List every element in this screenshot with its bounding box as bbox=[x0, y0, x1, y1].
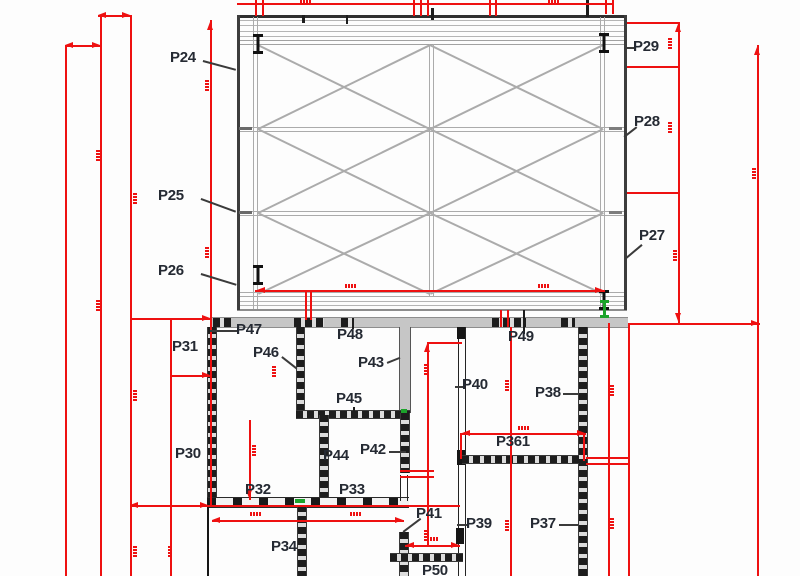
dimension-text-mark bbox=[133, 193, 137, 205]
point-label-p37: P37 bbox=[530, 516, 556, 531]
dimension-line bbox=[628, 323, 760, 325]
framing-line bbox=[600, 17, 601, 309]
dimension-line bbox=[400, 476, 434, 478]
dimension-line bbox=[586, 463, 628, 465]
wall-segment bbox=[390, 553, 463, 562]
dimension-text-mark bbox=[133, 546, 137, 558]
dimension-arrow bbox=[200, 502, 208, 508]
framing-line bbox=[237, 20, 627, 21]
dimension-text-mark bbox=[300, 0, 312, 4]
dimension-line bbox=[460, 433, 462, 459]
dimension-arrow bbox=[130, 502, 138, 508]
framing-line bbox=[237, 31, 627, 32]
dimension-text-mark bbox=[133, 390, 137, 402]
plan-geometry bbox=[0, 0, 800, 576]
point-label-p47: P47 bbox=[236, 322, 262, 337]
dimension-arrow bbox=[751, 320, 759, 326]
dimension-line bbox=[255, 290, 605, 292]
dimension-line bbox=[420, 0, 422, 16]
dimension-line bbox=[757, 45, 759, 576]
dimension-text-mark bbox=[168, 546, 172, 558]
column-marker-icon bbox=[253, 34, 263, 54]
point-label-p50: P50 bbox=[422, 563, 448, 576]
leader-line bbox=[559, 524, 578, 526]
dimension-line bbox=[608, 323, 610, 576]
dimension-line bbox=[130, 505, 460, 507]
point-label-p30: P30 bbox=[175, 446, 201, 461]
dimension-text-mark bbox=[668, 122, 672, 134]
point-label-p49: P49 bbox=[508, 329, 534, 344]
wall-segment bbox=[296, 327, 305, 411]
dimension-line bbox=[212, 520, 404, 522]
framing-line bbox=[433, 44, 434, 296]
point-label-p45: P45 bbox=[336, 391, 362, 406]
dimension-line bbox=[413, 0, 415, 16]
dimension-text-mark bbox=[518, 426, 530, 430]
leader-line bbox=[210, 330, 237, 332]
dimension-arrow bbox=[122, 12, 130, 18]
point-label-p27: P27 bbox=[639, 228, 665, 243]
dimension-arrow bbox=[577, 430, 585, 436]
framing-line bbox=[237, 305, 627, 306]
leader-line bbox=[389, 451, 406, 453]
dimension-line bbox=[262, 0, 264, 16]
dimension-arrow bbox=[395, 517, 403, 523]
point-label-p24: P24 bbox=[170, 50, 196, 65]
framing-line bbox=[431, 8, 434, 20]
point-label-p25: P25 bbox=[158, 188, 184, 203]
dimension-arrow bbox=[462, 430, 470, 436]
dimension-line bbox=[628, 323, 630, 576]
framing-line bbox=[239, 211, 252, 214]
dimension-text-mark bbox=[96, 150, 100, 162]
dimension-line bbox=[65, 45, 67, 576]
framing-line bbox=[237, 40, 627, 41]
dimension-text-mark bbox=[610, 385, 614, 397]
dimension-line bbox=[400, 470, 434, 472]
dimension-line bbox=[427, 0, 429, 16]
dimension-line bbox=[605, 0, 607, 14]
point-label-p46: P46 bbox=[253, 345, 279, 360]
dimension-line bbox=[507, 310, 509, 327]
point-label-p29: P29 bbox=[633, 39, 659, 54]
survey-mark bbox=[295, 499, 305, 503]
framing-line bbox=[237, 292, 627, 293]
point-label-p39: P39 bbox=[466, 516, 492, 531]
framing-line bbox=[624, 15, 627, 310]
dimension-arrow bbox=[406, 542, 414, 548]
point-label-p32: P32 bbox=[245, 482, 271, 497]
point-label-p48: P48 bbox=[337, 327, 363, 342]
framing-line bbox=[609, 127, 622, 130]
dimension-line bbox=[583, 433, 585, 461]
leader-line bbox=[563, 393, 578, 395]
framing-line bbox=[346, 15, 348, 24]
point-label-p361: P361 bbox=[496, 434, 530, 449]
dimension-arrow bbox=[257, 287, 265, 293]
wall-segment bbox=[297, 505, 307, 576]
dimension-text-mark bbox=[96, 300, 100, 312]
dimension-arrow bbox=[202, 315, 210, 321]
framing-line bbox=[237, 25, 627, 26]
point-label-p38: P38 bbox=[535, 385, 561, 400]
dimension-arrow bbox=[675, 313, 681, 321]
framing-line bbox=[604, 17, 605, 309]
framing-line bbox=[237, 309, 627, 311]
dimension-arrow bbox=[675, 24, 681, 32]
dimension-line bbox=[586, 457, 628, 459]
wall-segment bbox=[400, 475, 408, 501]
dimension-text-mark bbox=[673, 250, 677, 262]
dimension-arrow bbox=[595, 287, 603, 293]
point-label-p40: P40 bbox=[462, 377, 488, 392]
dimension-line bbox=[678, 22, 680, 323]
dimension-line bbox=[310, 290, 312, 320]
survey-mark bbox=[401, 409, 407, 413]
dimension-arrow bbox=[754, 47, 760, 55]
dimension-line bbox=[130, 15, 132, 576]
wall-segment bbox=[207, 327, 217, 498]
column-marker-icon bbox=[599, 33, 609, 53]
dimension-line bbox=[427, 342, 462, 344]
point-label-p33: P33 bbox=[339, 482, 365, 497]
dimension-line bbox=[305, 290, 307, 320]
dimension-text-mark bbox=[610, 518, 614, 530]
dimension-arrow bbox=[212, 517, 220, 523]
point-label-p26: P26 bbox=[158, 263, 184, 278]
dimension-text-mark bbox=[505, 520, 509, 532]
dimension-text-mark bbox=[424, 530, 428, 542]
dimension-arrow bbox=[202, 372, 210, 378]
dimension-line bbox=[100, 15, 102, 576]
drawing-sheet: P24 P25 P26 P27 P28 P29 P30 P31 P32 P33 … bbox=[0, 0, 800, 576]
leader-line bbox=[353, 407, 355, 415]
dimension-text-mark bbox=[350, 512, 362, 516]
dimension-arrow bbox=[451, 542, 459, 548]
dimension-line bbox=[510, 327, 512, 576]
framing-line bbox=[212, 327, 628, 328]
dimension-line bbox=[170, 318, 172, 576]
point-label-p34: P34 bbox=[271, 539, 297, 554]
wall-segment bbox=[207, 500, 209, 576]
dimension-line bbox=[612, 0, 614, 14]
dimension-line bbox=[627, 66, 679, 68]
dimension-text-mark bbox=[272, 366, 276, 378]
framing-line bbox=[237, 127, 627, 128]
wall-segment bbox=[400, 413, 410, 473]
framing-line bbox=[237, 301, 627, 302]
dimension-line bbox=[210, 20, 212, 505]
wall-segment bbox=[561, 318, 575, 327]
dimension-text-mark bbox=[205, 247, 209, 259]
dimension-text-mark bbox=[752, 168, 756, 180]
dimension-text-mark bbox=[252, 445, 256, 457]
dimension-line bbox=[500, 310, 502, 327]
framing-line bbox=[237, 215, 627, 216]
point-label-p28: P28 bbox=[634, 114, 660, 129]
framing-line bbox=[239, 127, 252, 130]
wall-segment bbox=[213, 318, 231, 327]
dimension-text-mark bbox=[205, 80, 209, 92]
dimension-text-mark bbox=[668, 38, 672, 50]
point-label-p31: P31 bbox=[172, 339, 198, 354]
dimension-line bbox=[627, 22, 679, 24]
framing-line bbox=[609, 211, 622, 214]
framing-line bbox=[237, 296, 627, 297]
dimension-arrow bbox=[424, 344, 430, 352]
dimension-line bbox=[255, 0, 257, 16]
dimension-line bbox=[489, 0, 491, 16]
column-marker-icon bbox=[253, 265, 263, 285]
dimension-arrow bbox=[65, 42, 73, 48]
framing-line bbox=[237, 131, 627, 132]
wall-segment bbox=[399, 327, 411, 413]
dimension-arrow bbox=[92, 42, 100, 48]
wall-segment bbox=[492, 318, 526, 327]
dimension-text-mark bbox=[427, 537, 439, 541]
column-marker-green-icon bbox=[600, 300, 609, 318]
point-label-p41: P41 bbox=[416, 506, 442, 521]
point-label-p43: P43 bbox=[358, 355, 384, 370]
dimension-text-mark bbox=[505, 380, 509, 392]
dimension-text-mark bbox=[250, 512, 262, 516]
dimension-text-mark bbox=[424, 364, 428, 376]
wall-segment bbox=[457, 327, 465, 339]
dimension-text-mark bbox=[345, 284, 357, 288]
dimension-arrow bbox=[207, 22, 213, 30]
dimension-text-mark bbox=[538, 284, 550, 288]
framing-line bbox=[429, 44, 430, 296]
point-label-p42: P42 bbox=[360, 442, 386, 457]
framing-line bbox=[237, 36, 627, 37]
framing-line bbox=[302, 15, 305, 23]
framing-line bbox=[237, 211, 627, 212]
framing-line bbox=[237, 15, 240, 310]
dimension-arrow bbox=[98, 12, 106, 18]
framing-line bbox=[237, 44, 627, 45]
dimension-line bbox=[627, 192, 679, 194]
point-label-p44: P44 bbox=[323, 448, 349, 463]
wall-segment bbox=[462, 455, 579, 464]
wall-segment bbox=[294, 318, 324, 327]
dimension-line bbox=[495, 0, 497, 16]
dimension-text-mark bbox=[548, 0, 560, 4]
